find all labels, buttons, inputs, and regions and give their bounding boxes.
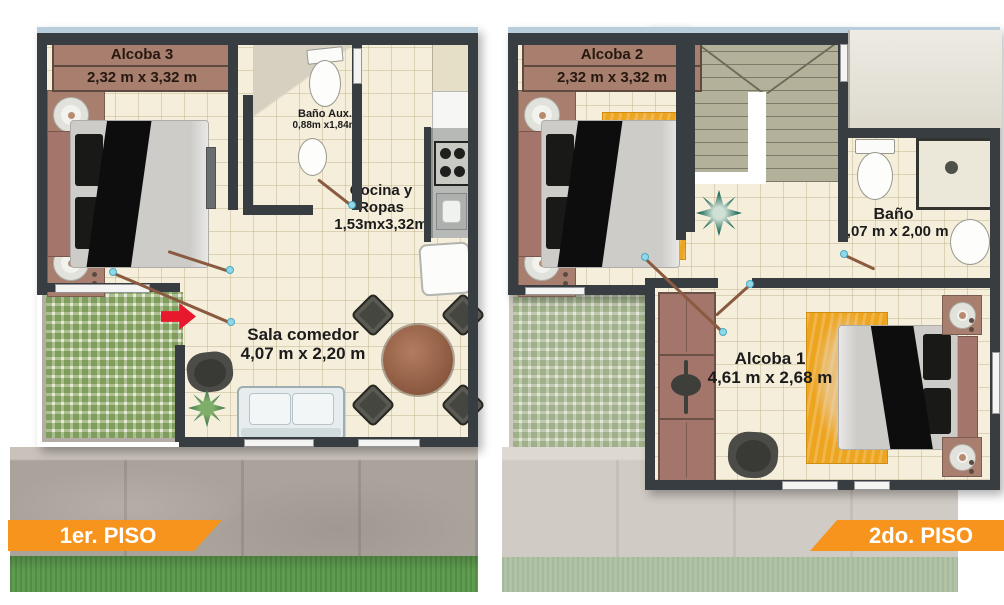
pillow <box>923 334 951 380</box>
wall <box>37 33 47 295</box>
window <box>840 44 848 82</box>
room-name: Alcoba 2 <box>524 44 700 67</box>
tv-panel-icon <box>206 147 216 209</box>
door-hinge <box>719 328 727 336</box>
room-name: Alcoba 3 <box>54 44 230 67</box>
chair-icon <box>727 431 779 480</box>
room-dims: 2,32 m x 3,32 m <box>54 67 230 88</box>
roof-void-area <box>848 30 1002 128</box>
lamp-icon <box>949 302 976 329</box>
toilet-icon <box>857 152 893 200</box>
floor-banner-1: 1er. PISO <box>8 520 222 551</box>
ghost-grass-strip <box>502 557 958 592</box>
bed-fold <box>839 326 857 449</box>
bed-icon <box>70 120 209 268</box>
room-dims: 1,53mx3,32m <box>325 217 437 234</box>
room-dims: 2,07 m x 2,00 m <box>836 224 951 241</box>
wall <box>838 128 1000 138</box>
window <box>244 439 314 447</box>
toilet-icon <box>309 60 341 107</box>
bed-icon <box>541 120 680 268</box>
kitchen-counter <box>432 43 471 92</box>
wall <box>752 278 1000 288</box>
window <box>782 481 838 490</box>
window <box>353 48 362 84</box>
door-hinge <box>109 268 117 276</box>
room-label-sala: Sala comedor 4,07 m x 2,20 m <box>238 325 368 365</box>
wall <box>645 288 655 490</box>
sofa-cushion <box>249 393 291 425</box>
room-label-cocina: Cocina y Ropas 1,53mx3,32m <box>325 183 437 235</box>
door-hinge <box>348 201 356 209</box>
door-hinge <box>226 266 234 274</box>
burner <box>440 148 451 159</box>
wardrobe-seam <box>686 296 687 352</box>
plant-icon <box>696 190 742 236</box>
floor-banner-2: 2do. PISO <box>810 520 1004 551</box>
room-label-alcoba1: Alcoba 1 4,61 m x 2,68 m <box>700 349 840 391</box>
window <box>525 287 585 295</box>
room-dims: 4,07 m x 2,20 m <box>238 344 368 363</box>
wall <box>175 345 185 442</box>
window <box>55 284 150 293</box>
burner <box>440 166 451 177</box>
wardrobe-divider <box>660 418 714 420</box>
stove-icon <box>434 141 471 186</box>
sofa-back <box>241 428 341 437</box>
wall <box>243 95 253 215</box>
nightstand-icon <box>942 295 982 335</box>
wall <box>37 33 478 45</box>
door-hinge <box>840 250 848 258</box>
sink-icon <box>298 138 327 176</box>
wall <box>179 437 478 447</box>
door-hinge <box>746 280 754 288</box>
room-name: Sala comedor <box>238 325 368 344</box>
floor-plans: Alcoba 3 2,32 m x 3,32 m Baño Aux. 0,88m… <box>0 0 1004 605</box>
shower-icon <box>916 138 998 210</box>
wall <box>508 33 518 295</box>
floor-banner-label: 2do. PISO <box>869 523 973 548</box>
wall <box>676 38 686 240</box>
room-label-alcoba3: Alcoba 3 2,32 m x 3,32 m <box>52 42 232 92</box>
stair-opening <box>748 92 766 182</box>
room-label-alcoba2: Alcoba 2 2,32 m x 3,32 m <box>522 42 702 92</box>
sofa-icon <box>237 386 345 441</box>
kitchen-sink-icon <box>436 193 467 230</box>
lamp-icon <box>949 444 976 471</box>
sink-icon <box>950 219 990 265</box>
room-name: Alcoba 1 <box>700 349 840 368</box>
burner <box>454 148 465 159</box>
wall <box>686 38 695 232</box>
dining-table-icon <box>383 325 453 395</box>
window <box>992 352 1000 414</box>
plant-icon <box>188 389 226 427</box>
ghost-patio-below <box>509 295 645 447</box>
window <box>854 481 890 490</box>
door-hinge <box>227 318 235 326</box>
room-dims: 4,61 m x 2,68 m <box>700 368 840 387</box>
wall <box>990 128 1000 490</box>
wall <box>468 33 478 447</box>
sofa-cushion <box>292 393 334 425</box>
room-label-bano: Baño 2,07 m x 2,00 m <box>836 206 951 246</box>
door-hinge <box>641 253 649 261</box>
wall <box>645 278 718 288</box>
floor-banner-label: 1er. PISO <box>60 523 157 548</box>
window <box>358 439 420 447</box>
stair-opening <box>695 172 766 184</box>
wardrobe-seam <box>686 422 687 478</box>
nightstand-icon <box>942 437 982 477</box>
wall <box>424 127 431 242</box>
grass-strip <box>10 556 478 592</box>
room-name-line2: Ropas <box>325 200 437 217</box>
burner <box>454 166 465 177</box>
room-dims: 2,32 m x 3,32 m <box>524 67 700 88</box>
washer-icon <box>432 91 470 130</box>
room-name: Baño <box>836 206 951 224</box>
bed-icon <box>838 325 958 450</box>
wall <box>228 38 238 210</box>
wardrobe-knob <box>671 374 701 396</box>
wall <box>838 138 848 242</box>
fridge-icon <box>418 241 473 296</box>
wall <box>243 205 313 215</box>
